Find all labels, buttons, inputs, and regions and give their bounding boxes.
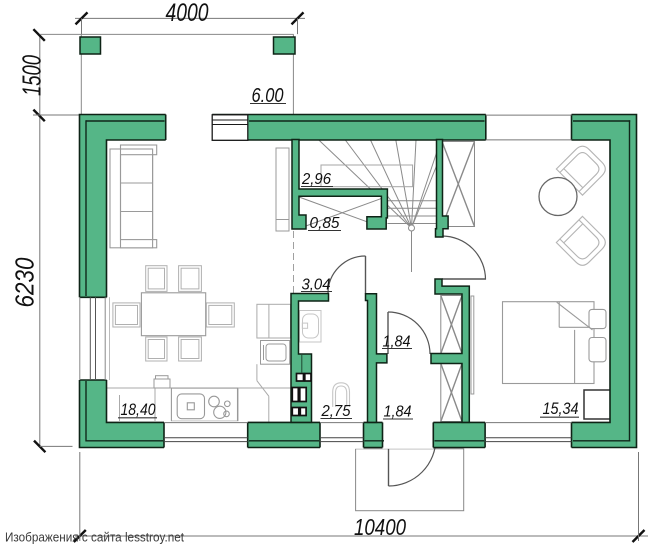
svg-text:15,34: 15,34 (543, 400, 579, 418)
svg-text:0,85: 0,85 (310, 215, 340, 232)
svg-text:1,84: 1,84 (384, 404, 412, 421)
svg-text:2,96: 2,96 (301, 171, 331, 188)
svg-text:2,75: 2,75 (321, 403, 351, 420)
svg-text:10400: 10400 (354, 514, 406, 540)
svg-text:Изображения с сайта lesstroy.n: Изображения с сайта lesstroy.net (5, 530, 184, 545)
svg-text:1500: 1500 (17, 55, 47, 96)
svg-text:18,40: 18,40 (121, 401, 157, 419)
svg-text:6230: 6230 (10, 257, 40, 307)
svg-text:4000: 4000 (166, 0, 209, 27)
